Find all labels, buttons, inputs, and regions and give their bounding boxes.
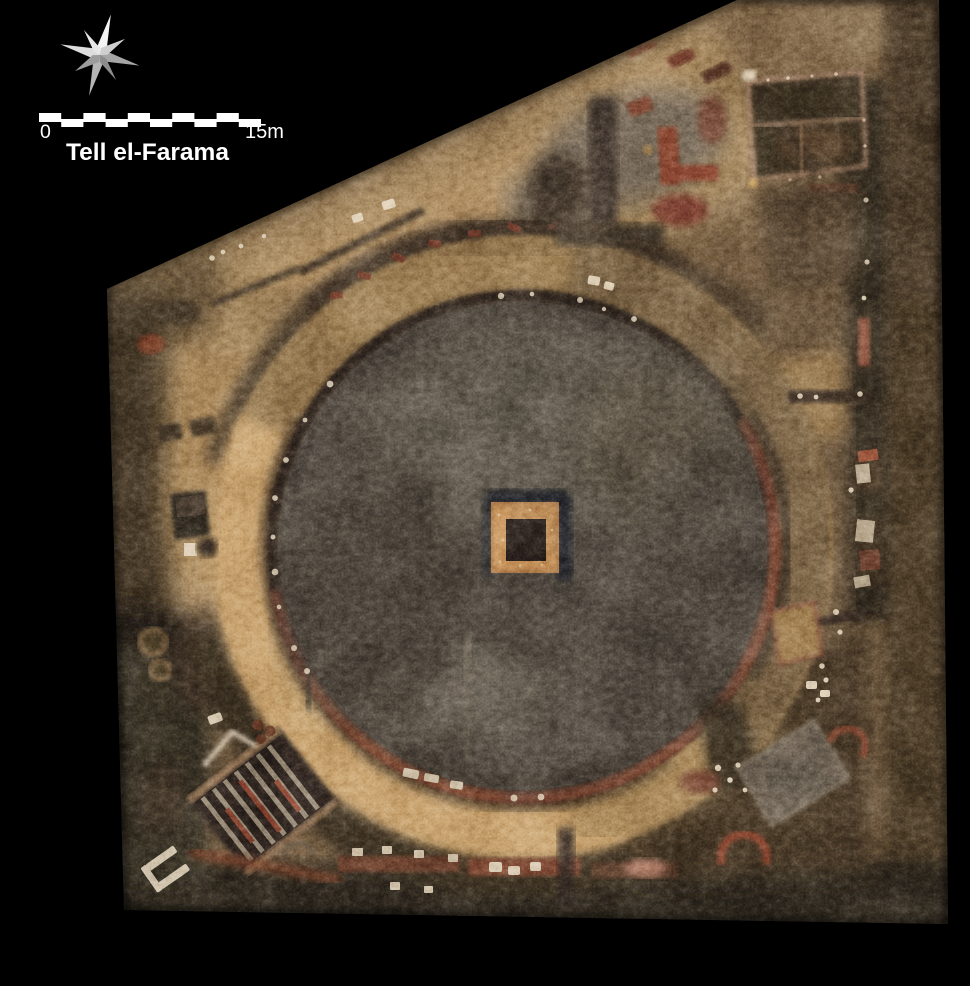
svg-text:0: 0 <box>40 121 51 143</box>
svg-text:Tell el-Farama: Tell el-Farama <box>66 139 229 166</box>
svg-text:15m: 15m <box>245 121 284 143</box>
